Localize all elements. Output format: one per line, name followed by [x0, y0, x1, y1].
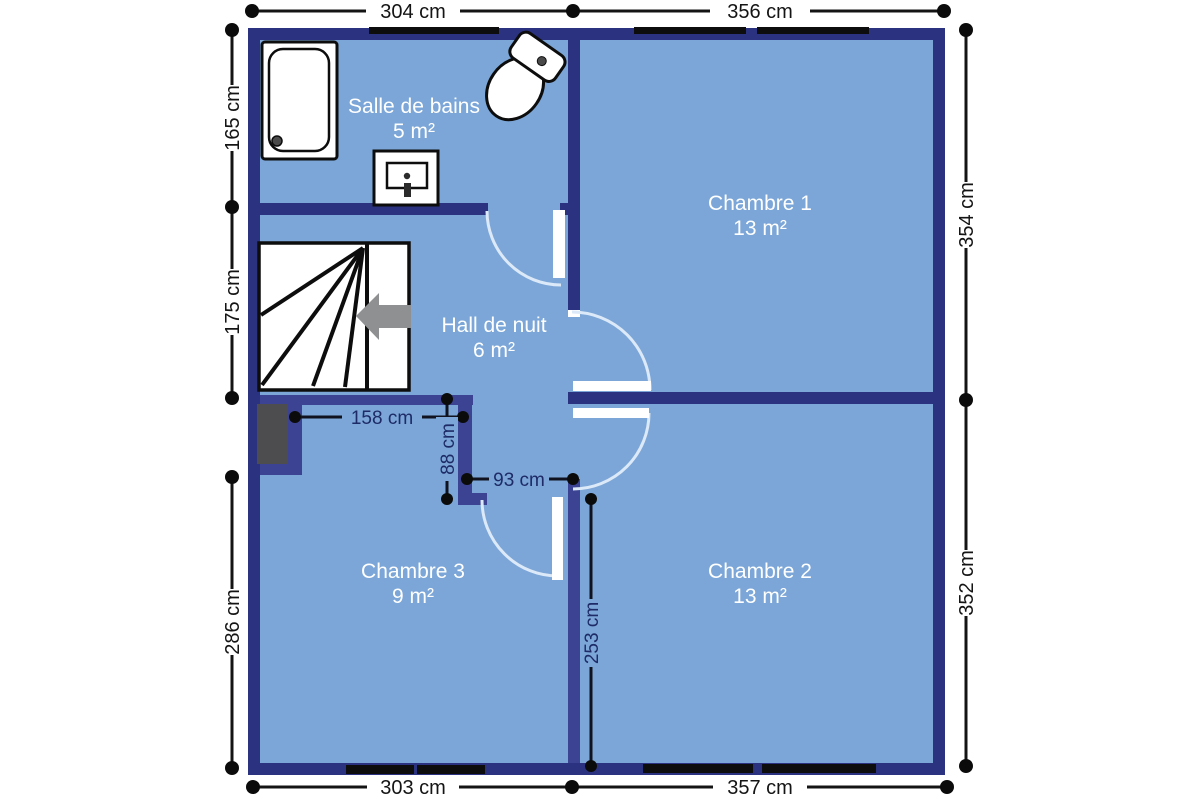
window-chambre2-right [762, 764, 876, 773]
dim-label-88: 88 cm [438, 423, 459, 475]
wall-hall-chambre3-foot [472, 493, 487, 505]
dim-dot [461, 473, 473, 485]
wall-bathroom-bottom [254, 203, 488, 215]
dim-dot [940, 780, 954, 794]
door-leaf [552, 497, 563, 580]
dim-dot [225, 200, 239, 214]
sink-icon [374, 151, 438, 205]
dim-label-bottom-left: 303 cm [380, 777, 446, 799]
dim-label-top-left: 304 cm [380, 1, 446, 23]
wall-chambre2-chambre3 [568, 479, 580, 763]
wall-chambre1-chambre2 [568, 392, 945, 404]
room-name: Chambre 2 [708, 560, 812, 583]
wall-hall-chambre1 [568, 40, 580, 317]
sink-faucet-stub [404, 183, 411, 197]
dim-dot [225, 470, 239, 484]
chimney-block [257, 404, 288, 464]
dim-label-bottom-right: 357 cm [727, 777, 793, 799]
dim-label-158: 158 cm [351, 408, 413, 429]
dim-dot [225, 761, 239, 775]
window-chambre3-left [346, 765, 414, 774]
dim-label-253: 253 cm [582, 602, 603, 664]
floor-plan: 304 cm 356 cm 303 cm 357 cm 165 cm 175 c… [0, 0, 1200, 800]
dim-dot [585, 493, 597, 505]
room-area: 5 m² [393, 120, 435, 143]
room-area: 9 m² [392, 585, 434, 608]
dim-dot [246, 780, 260, 794]
dimension-bottom: 303 cm 357 cm [246, 776, 954, 799]
dim-dot [959, 759, 973, 773]
door-leaf [553, 210, 565, 278]
chimney-surround-bottom [256, 464, 302, 475]
dim-dot [566, 4, 580, 18]
dimension-right: 354 cm 352 cm [955, 23, 978, 773]
room-name: Salle de bains [348, 95, 480, 118]
dim-dot [585, 760, 597, 772]
shower-drain [272, 136, 282, 146]
wall-hall-chambre3 [256, 395, 473, 405]
dim-label-left-3: 286 cm [222, 589, 244, 655]
dim-dot [225, 23, 239, 37]
room-name: Hall de nuit [441, 314, 546, 337]
window-bathroom [369, 27, 499, 34]
room-area: 6 m² [473, 339, 515, 362]
room-area: 13 m² [733, 217, 787, 240]
dimension-left: 165 cm 175 cm 286 cm [221, 23, 244, 775]
window-chambre2-left [643, 764, 753, 773]
room-name: Chambre 1 [708, 192, 812, 215]
dim-label-left-1: 165 cm [222, 85, 244, 151]
dim-dot [937, 4, 951, 18]
wall-left [248, 28, 260, 775]
dim-dot [225, 391, 239, 405]
dim-label-right-1: 354 cm [956, 182, 978, 248]
shower-tray-icon [262, 42, 337, 159]
door-leaf [573, 381, 651, 391]
door-leaf [573, 408, 649, 418]
dim-dot [567, 473, 579, 485]
window-chambre1-left [634, 27, 746, 34]
window-chambre1-right [757, 27, 869, 34]
dimension-top: 304 cm 356 cm [245, 0, 951, 23]
room-name: Chambre 3 [361, 560, 465, 583]
dim-label-93: 93 cm [493, 470, 545, 491]
dim-dot [289, 411, 301, 423]
dim-dot [441, 393, 453, 405]
staircase [259, 243, 411, 390]
dim-dot [457, 411, 469, 423]
dim-dot [565, 780, 579, 794]
sink-faucet-dot [404, 173, 410, 179]
dim-label-top-right: 356 cm [727, 1, 793, 23]
dim-dot [959, 23, 973, 37]
dim-dot [959, 393, 973, 407]
floor-plan-page: 304 cm 356 cm 303 cm 357 cm 165 cm 175 c… [0, 0, 1200, 800]
dim-label-left-2: 175 cm [222, 269, 244, 335]
dim-dot [441, 493, 453, 505]
dim-label-right-2: 352 cm [956, 550, 978, 616]
window-chambre3-right [417, 765, 485, 774]
room-area: 13 m² [733, 585, 787, 608]
dim-dot [245, 4, 259, 18]
